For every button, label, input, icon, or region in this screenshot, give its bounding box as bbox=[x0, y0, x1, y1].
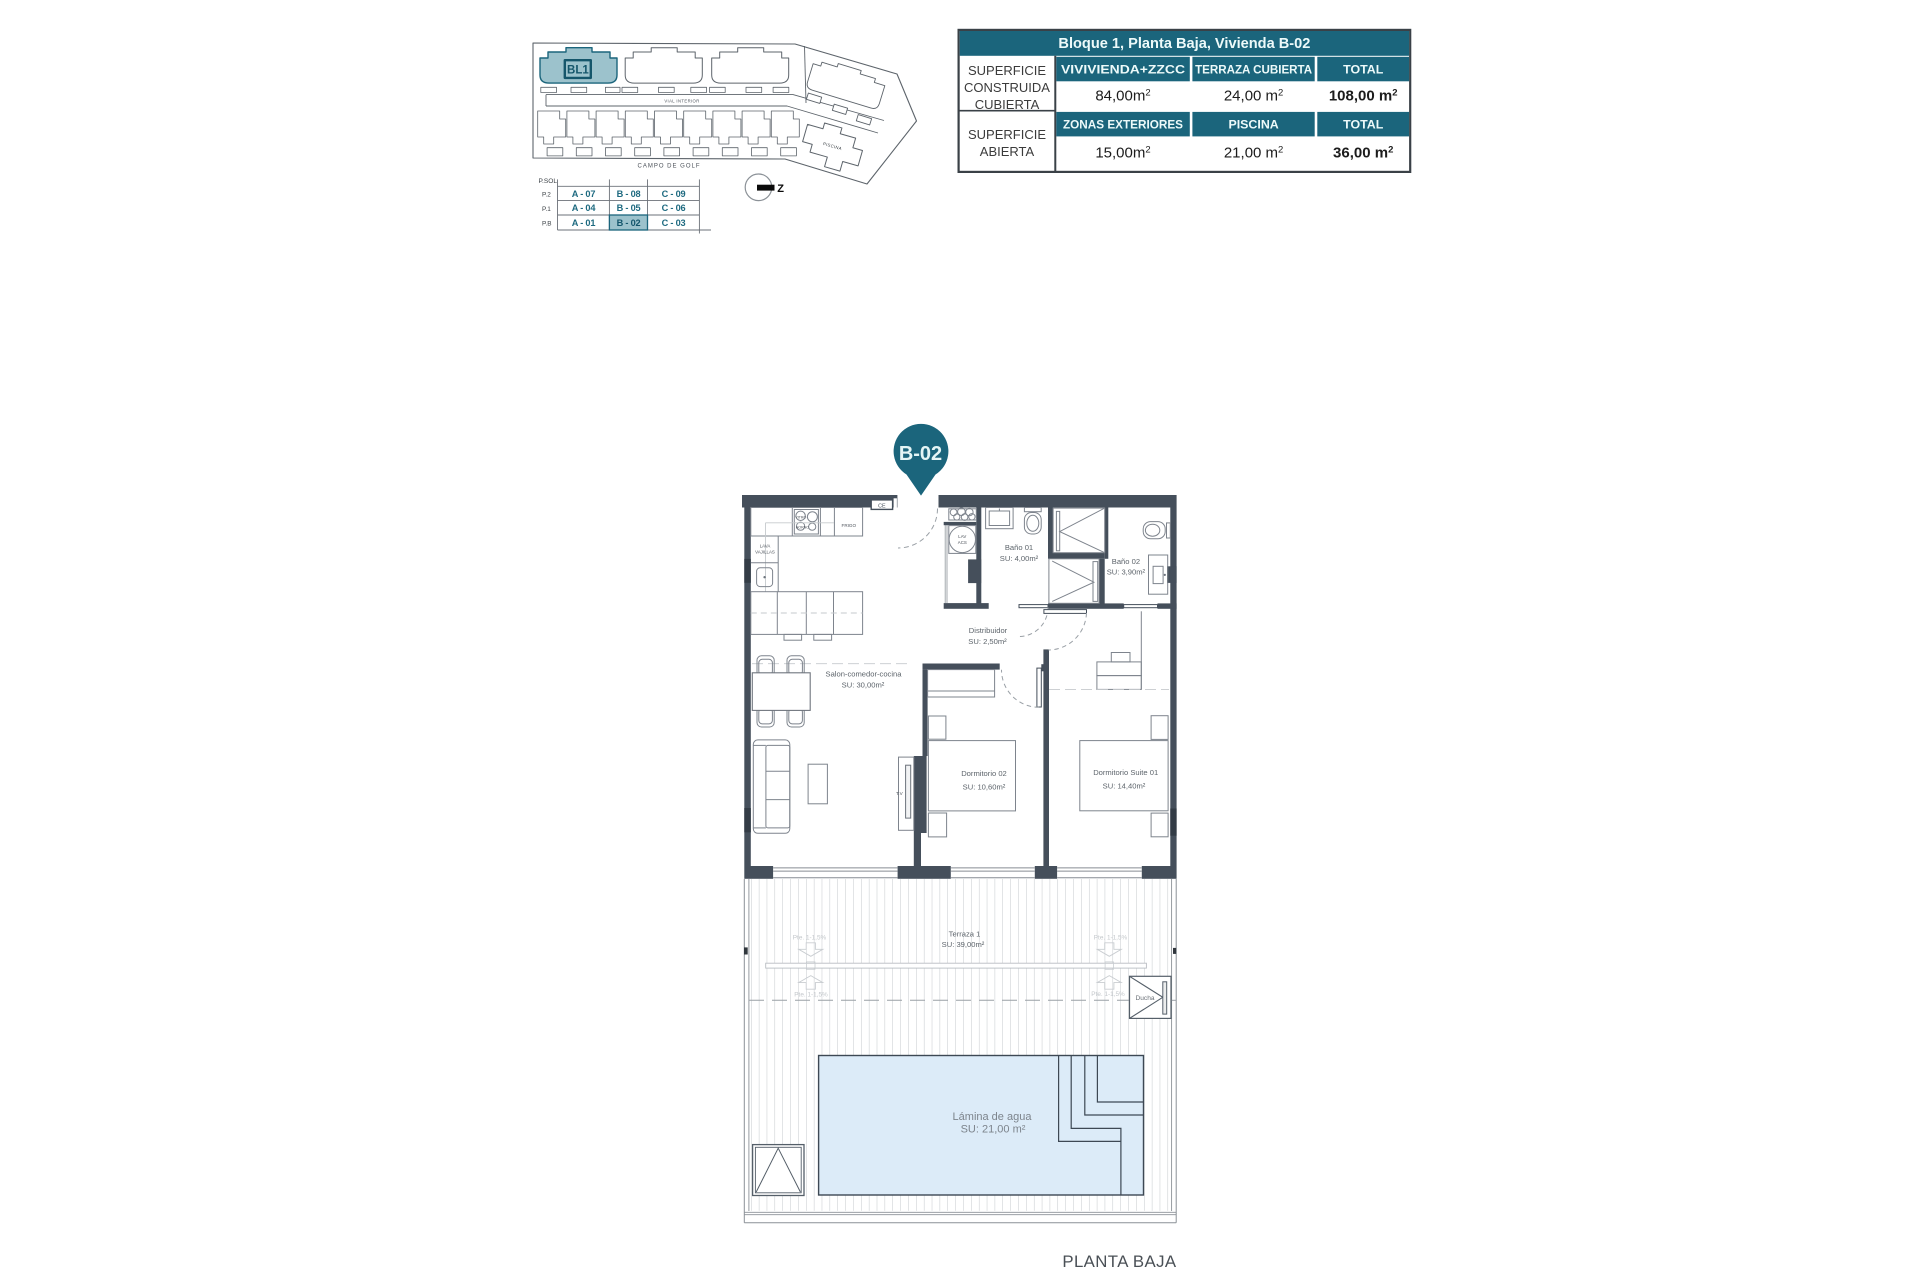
svg-text:B - 05: B - 05 bbox=[617, 203, 641, 213]
svg-text:CAMPO DE GOLF: CAMPO DE GOLF bbox=[637, 164, 700, 170]
svg-text:24,00 m2: 24,00 m2 bbox=[1224, 88, 1284, 105]
svg-text:Terraza 1: Terraza 1 bbox=[949, 930, 981, 939]
svg-text:HORNO: HORNO bbox=[796, 526, 810, 530]
svg-text:Pte. 1-1,5%: Pte. 1-1,5% bbox=[1091, 991, 1125, 998]
svg-text:SU: 3,90m²: SU: 3,90m² bbox=[1107, 568, 1146, 577]
svg-text:FRIGO: FRIGO bbox=[842, 523, 857, 528]
svg-text:108,00 m2: 108,00 m2 bbox=[1329, 88, 1398, 105]
svg-text:SUPERFICIE: SUPERFICIE bbox=[968, 63, 1046, 78]
svg-text:TOTAL: TOTAL bbox=[1343, 62, 1384, 76]
svg-text:84,00m2: 84,00m2 bbox=[1095, 88, 1150, 105]
svg-text:VITRO: VITRO bbox=[795, 515, 806, 519]
svg-text:T.V: T.V bbox=[896, 791, 904, 796]
svg-text:A - 07: A - 07 bbox=[572, 189, 596, 199]
svg-text:VIVIVIENDA+ZZCC: VIVIVIENDA+ZZCC bbox=[1061, 62, 1185, 76]
svg-text:21,00 m2: 21,00 m2 bbox=[1224, 145, 1284, 162]
svg-text:C - 03: C - 03 bbox=[662, 218, 686, 228]
svg-text:SU: 14,40m²: SU: 14,40m² bbox=[1103, 782, 1146, 791]
svg-text:Z: Z bbox=[777, 183, 784, 195]
svg-text:P.1: P.1 bbox=[542, 206, 551, 213]
svg-text:36,00 m2: 36,00 m2 bbox=[1333, 145, 1393, 162]
svg-text:B - 02: B - 02 bbox=[617, 218, 641, 228]
svg-text:Salon-comedor-cocina: Salon-comedor-cocina bbox=[826, 670, 903, 679]
svg-text:Baño 02: Baño 02 bbox=[1112, 557, 1140, 566]
svg-text:Pte. 1-1,5%: Pte. 1-1,5% bbox=[794, 991, 828, 998]
svg-text:15,00m2: 15,00m2 bbox=[1095, 145, 1150, 162]
svg-text:P.SOL: P.SOL bbox=[539, 178, 558, 185]
svg-text:P.B: P.B bbox=[542, 221, 551, 228]
svg-text:P.2: P.2 bbox=[542, 192, 551, 199]
svg-text:VIAL INTERIOR: VIAL INTERIOR bbox=[664, 99, 699, 104]
svg-text:CONSTRUIDA: CONSTRUIDA bbox=[964, 80, 1050, 95]
svg-text:CUBIERTA: CUBIERTA bbox=[975, 97, 1040, 112]
svg-text:SU: 21,00 m²: SU: 21,00 m² bbox=[961, 1124, 1026, 1136]
svg-text:SU: 30,00m²: SU: 30,00m² bbox=[842, 681, 885, 690]
svg-text:B-02: B-02 bbox=[899, 443, 942, 465]
svg-text:SUPERFICIE: SUPERFICIE bbox=[968, 127, 1046, 142]
svg-text:Dormitorio Suite 01: Dormitorio Suite 01 bbox=[1093, 768, 1158, 777]
svg-text:CE: CE bbox=[878, 503, 886, 509]
svg-text:VAJILLAS: VAJILLAS bbox=[755, 550, 775, 555]
svg-text:LAVA: LAVA bbox=[760, 544, 771, 549]
svg-text:TERRAZA CUBIERTA: TERRAZA CUBIERTA bbox=[1195, 62, 1312, 76]
svg-text:Pte. 1-1,5%: Pte. 1-1,5% bbox=[793, 935, 827, 942]
svg-text:TOTAL: TOTAL bbox=[1343, 118, 1384, 132]
svg-text:SU: 2,50m²: SU: 2,50m² bbox=[968, 637, 1007, 646]
svg-text:C - 06: C - 06 bbox=[662, 203, 686, 213]
svg-text:SU: 39,00m²: SU: 39,00m² bbox=[942, 940, 985, 949]
svg-text:Bloque 1, Planta Baja, Viviend: Bloque 1, Planta Baja, Vivienda B-02 bbox=[1058, 36, 1310, 52]
svg-text:PISCINA: PISCINA bbox=[1228, 118, 1278, 132]
svg-text:C - 09: C - 09 bbox=[662, 189, 686, 199]
svg-text:Baño 01: Baño 01 bbox=[1005, 543, 1033, 552]
svg-text:Pte. 1-1,5%: Pte. 1-1,5% bbox=[1094, 935, 1128, 942]
svg-text:LAV: LAV bbox=[958, 534, 966, 539]
svg-text:BL1: BL1 bbox=[567, 65, 589, 77]
svg-text:A - 01: A - 01 bbox=[572, 218, 596, 228]
svg-text:Dormitorio 02: Dormitorio 02 bbox=[961, 769, 1007, 778]
svg-text:Ducha: Ducha bbox=[1135, 995, 1154, 1002]
svg-text:SU: 10,60m²: SU: 10,60m² bbox=[963, 783, 1006, 792]
svg-text:ABIERTA: ABIERTA bbox=[980, 144, 1035, 159]
svg-text:Distribuidor: Distribuidor bbox=[969, 626, 1008, 635]
svg-text:PLANTA BAJA: PLANTA BAJA bbox=[1062, 1252, 1177, 1271]
svg-text:ACS: ACS bbox=[958, 540, 967, 545]
svg-text:B - 08: B - 08 bbox=[617, 189, 641, 199]
svg-text:ZONAS EXTERIORES: ZONAS EXTERIORES bbox=[1063, 118, 1183, 132]
svg-text:A - 04: A - 04 bbox=[572, 203, 597, 213]
svg-text:SU: 4,00m²: SU: 4,00m² bbox=[1000, 554, 1039, 563]
svg-text:Lámina de agua: Lámina de agua bbox=[953, 1111, 1033, 1123]
